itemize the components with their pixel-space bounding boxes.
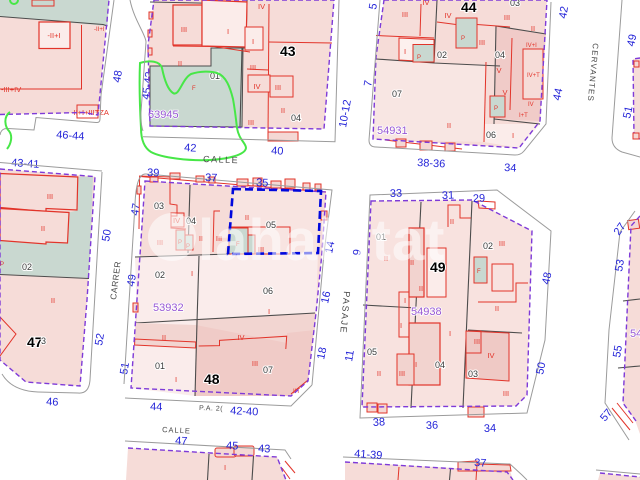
svg-text:F: F	[477, 269, 481, 275]
svg-text:III: III	[250, 63, 256, 72]
svg-text:III: III	[248, 118, 254, 127]
svg-text:18: 18	[315, 346, 329, 360]
svg-text:03: 03	[510, 0, 520, 8]
svg-text:04: 04	[291, 113, 301, 123]
svg-text:IV+I: IV+I	[526, 43, 537, 49]
svg-text:CALLE: CALLE	[162, 425, 191, 435]
svg-text:lahabitat: lahabitat	[198, 208, 446, 273]
svg-text:V: V	[502, 88, 507, 97]
svg-text:II: II	[413, 360, 417, 369]
svg-text:48: 48	[540, 271, 554, 285]
svg-text:03: 03	[154, 201, 164, 211]
svg-text:II: II	[41, 224, 45, 233]
svg-text:45: 45	[226, 440, 239, 452]
svg-text:III: III	[181, 25, 187, 34]
svg-text:54938: 54938	[411, 306, 442, 318]
svg-text:P: P	[417, 55, 421, 61]
svg-text:IV: IV	[422, 0, 429, 7]
svg-text:III: III	[503, 389, 509, 398]
svg-text:37: 37	[474, 457, 487, 470]
svg-text:07: 07	[392, 89, 402, 99]
svg-text:I: I	[404, 47, 406, 56]
svg-text:III: III	[474, 337, 480, 346]
svg-text:34: 34	[484, 423, 497, 435]
svg-text:34: 34	[504, 162, 517, 175]
svg-text:III: III	[504, 13, 510, 22]
svg-text:F: F	[192, 86, 196, 92]
svg-text:29: 29	[473, 193, 486, 205]
svg-text:46-44: 46-44	[56, 129, 85, 143]
svg-text:I+T: I+T	[519, 113, 528, 119]
svg-text:04: 04	[435, 360, 445, 370]
svg-text:I: I	[175, 375, 177, 384]
svg-text:P: P	[461, 36, 465, 42]
svg-text:47: 47	[175, 435, 188, 448]
svg-text:II: II	[51, 296, 55, 305]
svg-text:40: 40	[271, 145, 284, 158]
svg-text:II: II	[419, 284, 423, 293]
svg-text:III: III	[499, 239, 505, 248]
svg-text:-II+I: -II+I	[94, 27, 105, 33]
svg-text:V: V	[496, 66, 501, 75]
svg-text:38: 38	[373, 416, 386, 429]
svg-text:49: 49	[625, 33, 639, 47]
svg-text:06: 06	[486, 130, 496, 140]
svg-text:IIT: IIT	[293, 389, 300, 395]
svg-text:I: I	[191, 269, 193, 278]
svg-text:06: 06	[263, 286, 273, 296]
svg-text:III: III	[252, 359, 258, 368]
svg-text:42: 42	[184, 142, 197, 155]
svg-text:16: 16	[319, 290, 333, 304]
svg-text:I: I	[227, 27, 229, 36]
svg-text:44: 44	[551, 87, 565, 101]
svg-text:53932: 53932	[153, 302, 184, 314]
svg-text:IV: IV	[237, 333, 244, 342]
svg-text:II: II	[447, 121, 451, 130]
svg-text:42: 42	[557, 5, 571, 19]
svg-text:48: 48	[204, 371, 220, 387]
svg-text:IV: IV	[258, 2, 265, 11]
svg-text:01: 01	[155, 361, 165, 371]
svg-text:53: 53	[613, 258, 627, 272]
svg-text:07: 07	[263, 365, 273, 375]
svg-text:III: III	[479, 38, 485, 47]
svg-text:P.A. 2(: P.A. 2(	[199, 405, 223, 413]
svg-text:CALLE: CALLE	[203, 154, 239, 165]
svg-text:63945: 63945	[148, 109, 179, 121]
svg-text:II: II	[531, 24, 535, 33]
svg-text:47: 47	[129, 202, 143, 216]
svg-text:04: 04	[495, 50, 505, 60]
svg-text:II: II	[178, 59, 182, 68]
svg-text:35: 35	[256, 177, 269, 189]
svg-text:III: III	[399, 369, 405, 378]
svg-text:IV: IV	[528, 102, 534, 108]
svg-text:IV: IV	[253, 82, 260, 91]
svg-text:55: 55	[611, 344, 625, 358]
svg-text:36: 36	[426, 420, 439, 432]
svg-text:III: III	[47, 192, 53, 201]
svg-text:II: II	[162, 333, 166, 342]
svg-text:39: 39	[147, 167, 160, 179]
svg-text:31: 31	[442, 190, 455, 202]
svg-text:I: I	[404, 296, 406, 305]
svg-text:III: III	[402, 10, 408, 19]
svg-text:02: 02	[483, 241, 493, 251]
svg-text:IV+T: IV+T	[527, 73, 540, 79]
svg-text:IV: IV	[444, 11, 451, 20]
svg-text:43: 43	[280, 43, 296, 59]
svg-text:I: I	[400, 321, 402, 330]
svg-text:-II+I: -II+I	[47, 31, 60, 40]
svg-text:P: P	[494, 106, 498, 112]
svg-text:02: 02	[437, 50, 447, 60]
svg-text:02: 02	[22, 262, 32, 272]
svg-text:I: I	[512, 131, 514, 140]
svg-text:IV: IV	[487, 351, 494, 360]
svg-text:52: 52	[93, 332, 107, 346]
svg-text:I: I	[449, 329, 451, 338]
svg-text:3: 3	[41, 336, 46, 346]
svg-text:11: 11	[343, 349, 357, 362]
svg-text:02: 02	[155, 270, 165, 280]
svg-text:03: 03	[468, 369, 478, 379]
svg-text:I: I	[252, 37, 254, 46]
svg-text:50: 50	[534, 361, 548, 375]
svg-text:III: III	[275, 83, 281, 92]
svg-text:I: I	[268, 307, 270, 316]
svg-text:-III+IV: -III+IV	[1, 85, 21, 94]
svg-text:44: 44	[150, 401, 163, 413]
svg-text:II: II	[281, 106, 285, 115]
svg-text:37: 37	[205, 172, 218, 184]
svg-text:II: II	[450, 217, 454, 226]
svg-text:05: 05	[367, 347, 377, 357]
svg-text:41-39: 41-39	[354, 448, 383, 462]
svg-text:54931: 54931	[377, 125, 408, 137]
svg-text:38-36: 38-36	[417, 157, 446, 170]
svg-text:48: 48	[111, 69, 125, 83]
svg-text:54: 54	[630, 328, 640, 340]
svg-text:II: II	[495, 304, 499, 313]
svg-text:II: II	[377, 369, 381, 378]
svg-text:44: 44	[461, 0, 477, 15]
svg-text:33: 33	[390, 188, 403, 200]
svg-text:42-40: 42-40	[230, 405, 259, 418]
svg-text:50: 50	[100, 228, 114, 242]
svg-text:46: 46	[46, 396, 59, 409]
svg-text:43: 43	[258, 443, 271, 455]
svg-text:I: I	[224, 463, 226, 472]
